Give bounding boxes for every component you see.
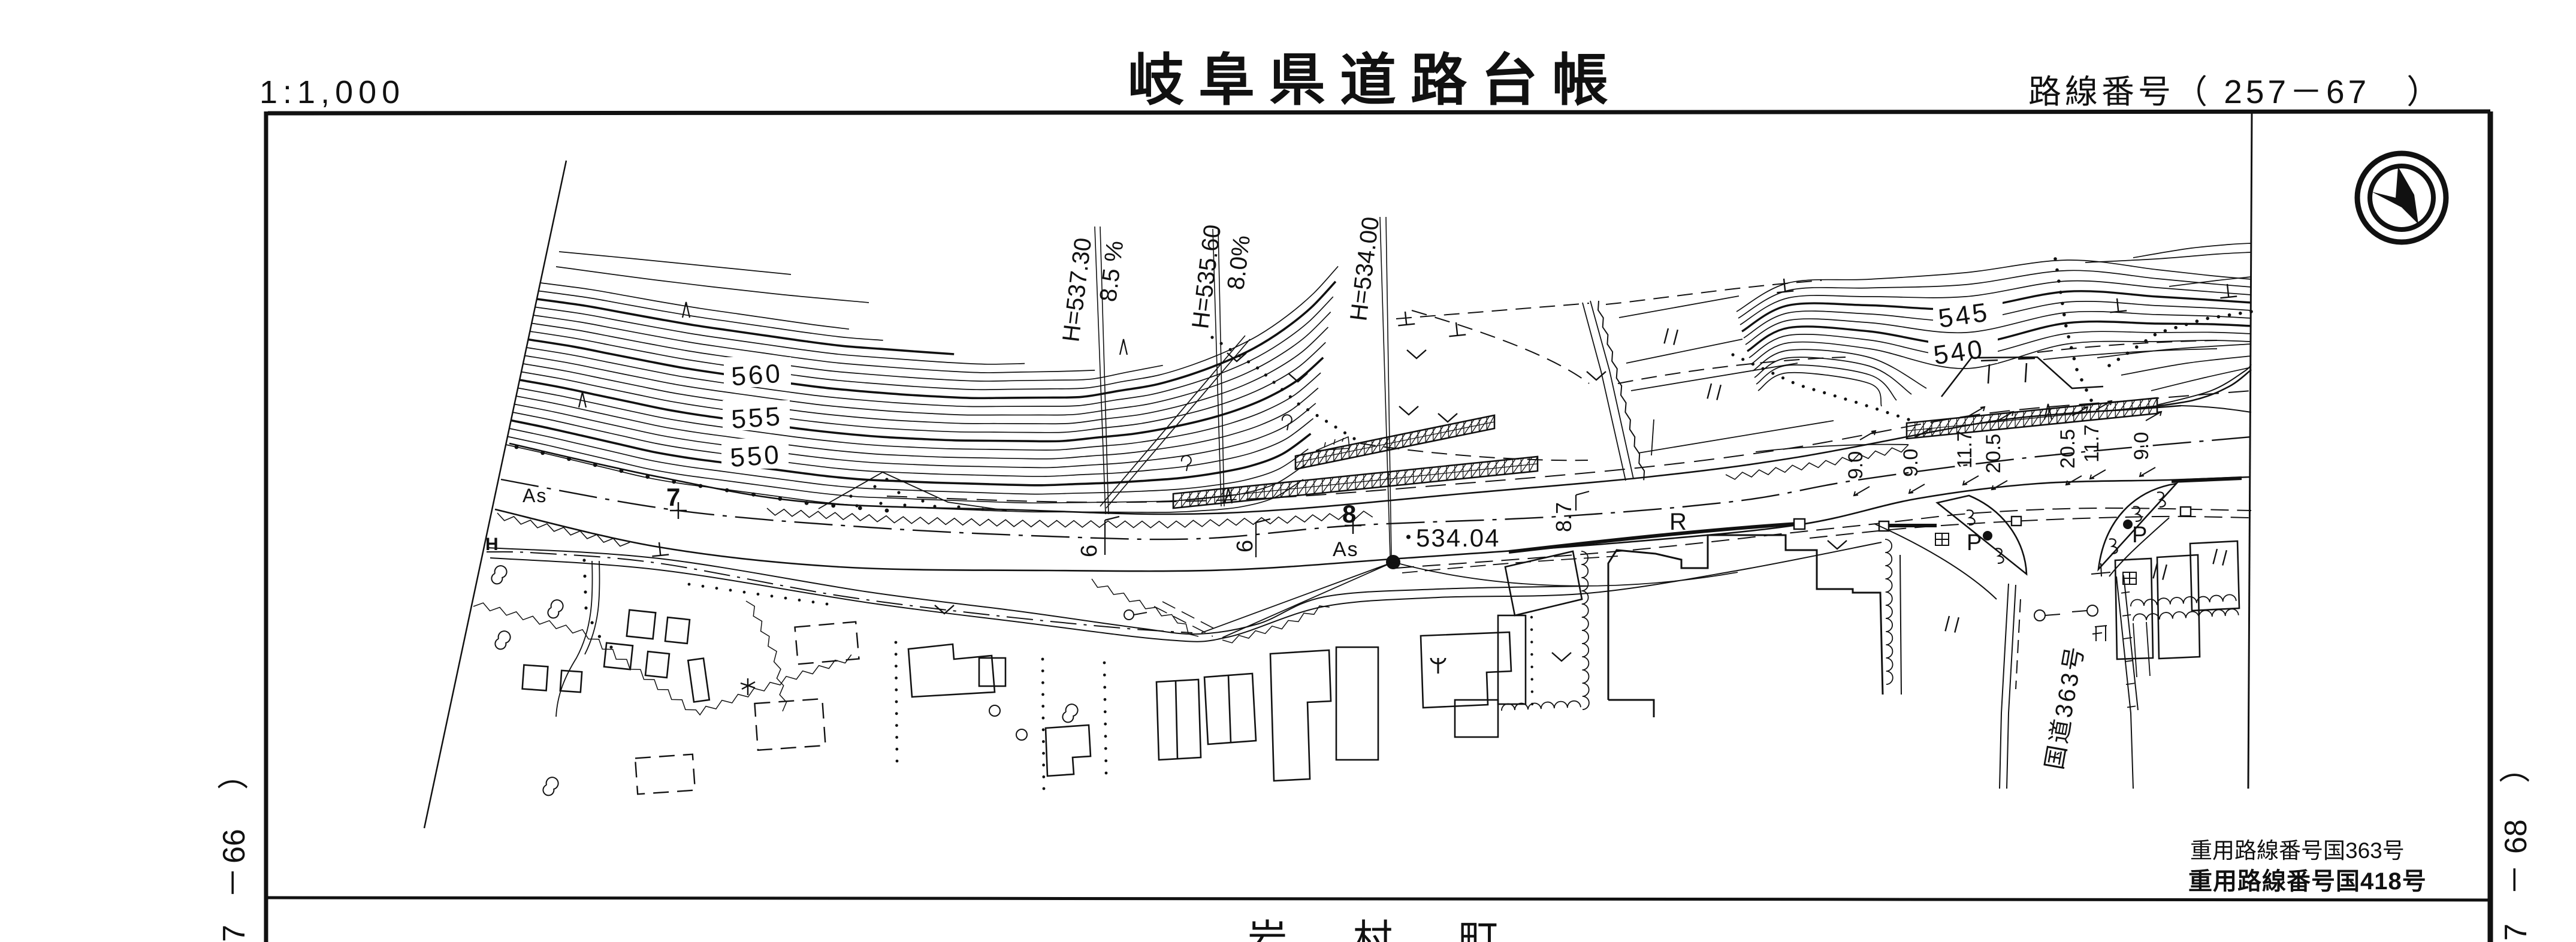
svg-text:8.0%: 8.0%	[1222, 234, 1255, 291]
svg-text:9.0: 9.0	[2130, 432, 2153, 460]
svg-text:As: As	[523, 485, 547, 506]
svg-text:8: 8	[1342, 500, 1356, 528]
svg-text:）: ）	[217, 759, 252, 790]
svg-text:･534.04: ･534.04	[1402, 524, 1500, 552]
svg-text:H: H	[485, 535, 499, 554]
svg-text:－: －	[217, 867, 252, 898]
svg-text:P: P	[2132, 523, 2147, 548]
svg-text:岩村町: 岩村町	[1248, 917, 1564, 942]
svg-text:路線番号（ 257－67 ）: 路線番号（ 257－67 ）	[2028, 73, 2443, 110]
svg-text:8.5 %: 8.5 %	[1095, 239, 1128, 303]
svg-text:20.5: 20.5	[1982, 434, 2005, 473]
svg-text:11.7: 11.7	[2080, 424, 2103, 463]
svg-text:R: R	[1669, 509, 1687, 535]
svg-text:68: 68	[2499, 819, 2533, 854]
svg-text:545: 545	[1937, 297, 1991, 333]
svg-text:20.5: 20.5	[2056, 429, 2079, 469]
svg-text:6: 6	[1233, 540, 1258, 552]
svg-text:66: 66	[217, 829, 252, 864]
svg-text:重用路線番号国363号: 重用路線番号国363号	[2190, 838, 2405, 863]
svg-text:H=534.00: H=534.00	[1345, 215, 1384, 322]
svg-text:11.7: 11.7	[1953, 430, 1976, 469]
svg-text:8.7: 8.7	[1551, 502, 1576, 532]
svg-text:H=537.30: H=537.30	[1058, 236, 1097, 343]
svg-text:As: As	[1333, 538, 1359, 561]
svg-text:9.0: 9.0	[1899, 449, 1922, 477]
svg-text:6: 6	[1077, 545, 1102, 557]
svg-text:555: 555	[730, 401, 784, 434]
svg-text:重用路線番号国418号: 重用路線番号国418号	[2188, 868, 2427, 895]
svg-text:7: 7	[2499, 923, 2533, 941]
svg-text:9.0: 9.0	[1844, 451, 1867, 479]
svg-text:7: 7	[217, 925, 252, 942]
svg-text:550: 550	[729, 440, 783, 473]
svg-text:1:1,000: 1:1,000	[259, 74, 405, 110]
svg-text:岐阜県道路台帳: 岐阜県道路台帳	[1128, 49, 1623, 111]
svg-text:540: 540	[1932, 334, 1986, 370]
svg-text:P: P	[1967, 530, 1982, 555]
svg-text:）: ）	[2499, 752, 2533, 783]
svg-text:－: －	[2499, 864, 2533, 895]
svg-text:560: 560	[730, 359, 784, 392]
svg-text:国道363号: 国道363号	[2042, 642, 2089, 771]
